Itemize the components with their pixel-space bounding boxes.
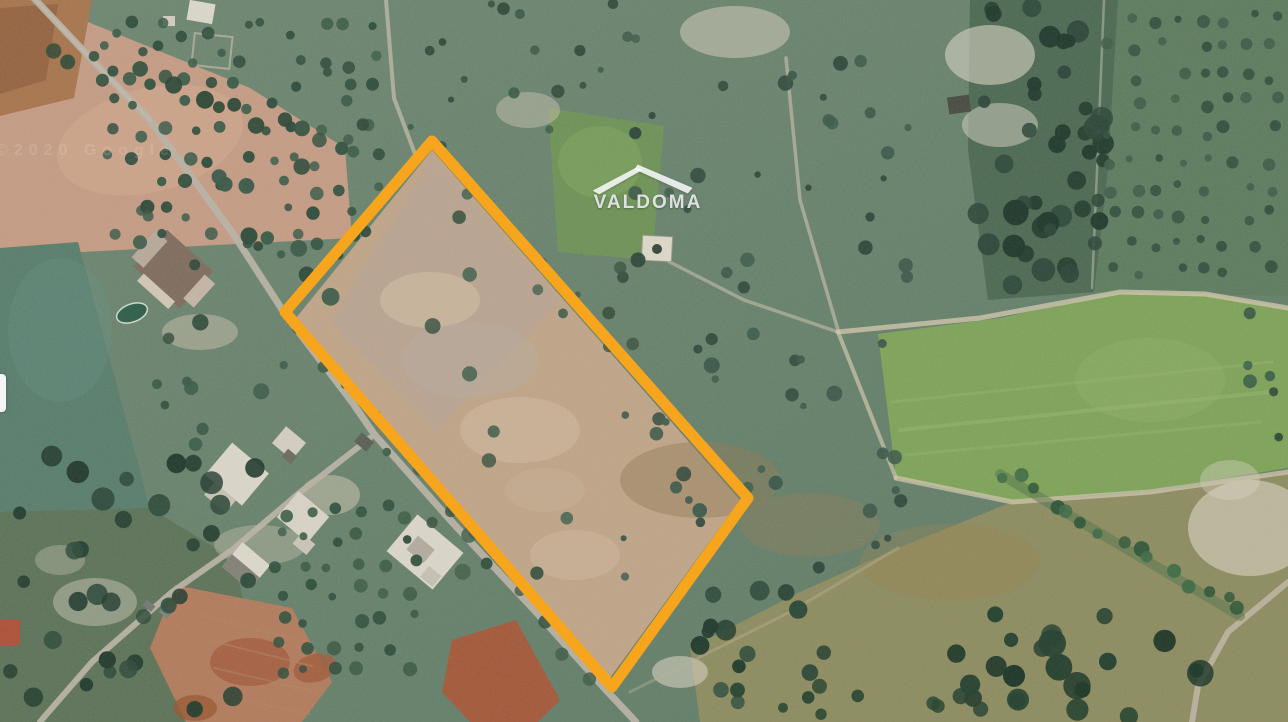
panel-edge-handle[interactable] bbox=[0, 374, 6, 412]
grain-overlay bbox=[0, 0, 1288, 722]
satellite-map-view[interactable]: ©2020 Google VALDOMA bbox=[0, 0, 1288, 722]
map-canvas[interactable] bbox=[0, 0, 1288, 722]
